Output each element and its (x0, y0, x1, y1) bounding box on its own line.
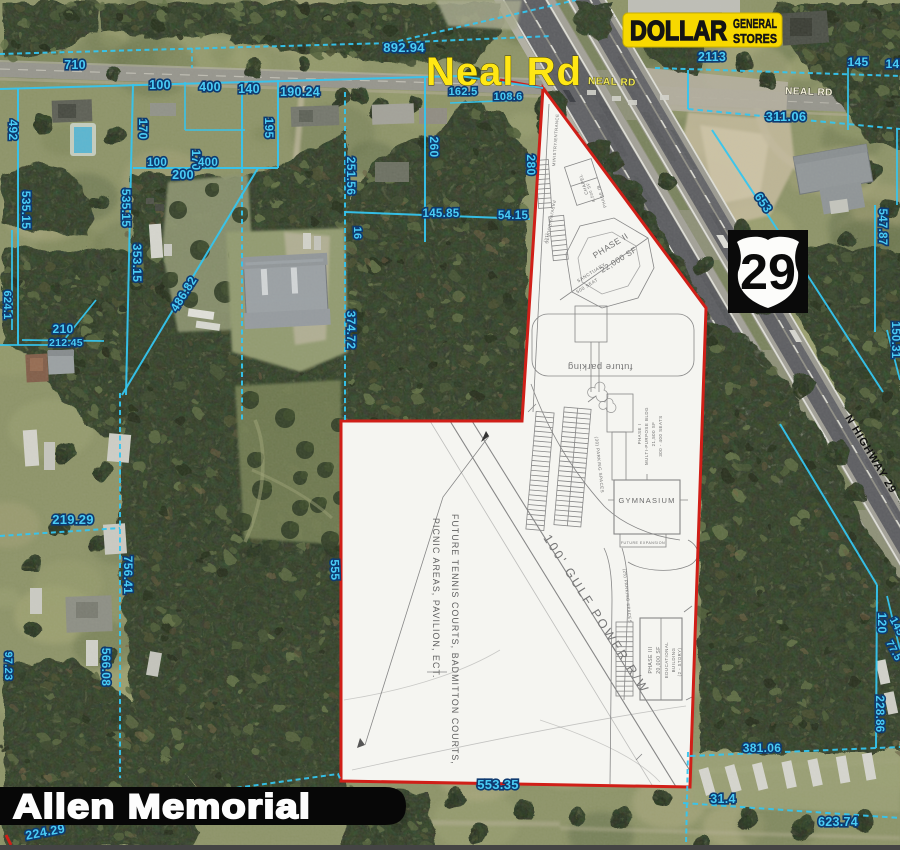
svg-text:140: 140 (238, 82, 260, 96)
svg-text:Allen Memorial: Allen Memorial (13, 788, 311, 826)
svg-text:353.15: 353.15 (130, 244, 144, 283)
svg-text:892.94: 892.94 (383, 40, 425, 55)
svg-text:54.15: 54.15 (498, 210, 529, 222)
svg-text:623.74: 623.74 (818, 815, 858, 829)
svg-text:100: 100 (147, 157, 167, 169)
svg-text:DOLLAR: DOLLAR (630, 15, 727, 46)
svg-text:31.4: 31.4 (710, 792, 736, 806)
svg-text:280: 280 (524, 155, 538, 176)
svg-text:21,500 SF: 21,500 SF (651, 422, 656, 447)
svg-text:145: 145 (848, 55, 869, 69)
svg-text:MULTI-PURPOSE BLDG: MULTI-PURPOSE BLDG (644, 407, 649, 465)
svg-text:381.06: 381.06 (743, 741, 782, 755)
svg-text:195: 195 (262, 118, 276, 139)
svg-text:170: 170 (136, 119, 150, 140)
svg-text:120: 120 (875, 613, 889, 634)
svg-text:20,000 SF: 20,000 SF (656, 646, 662, 674)
svg-text:PICNIC AREAS, PAVILION, ECT.: PICNIC AREAS, PAVILION, ECT. (431, 518, 441, 679)
svg-text:710: 710 (64, 58, 86, 72)
svg-text:97.23: 97.23 (2, 651, 14, 680)
svg-text:100: 100 (149, 78, 171, 92)
svg-text:2113: 2113 (698, 50, 726, 64)
svg-text:400: 400 (198, 157, 218, 169)
svg-text:29: 29 (740, 244, 796, 300)
svg-text:400: 400 (199, 80, 221, 94)
svg-text:311.06: 311.06 (766, 109, 807, 124)
svg-text:future parking: future parking (567, 361, 632, 372)
svg-text:219.29: 219.29 (52, 512, 94, 527)
svg-text:210: 210 (53, 322, 74, 336)
svg-text:535.15: 535.15 (119, 189, 133, 228)
svg-text:NEAL RD: NEAL RD (588, 76, 636, 89)
svg-text:Neal Rd: Neal Rd (426, 50, 582, 94)
svg-text:200: 200 (172, 168, 194, 182)
svg-text:251.56: 251.56 (344, 157, 358, 196)
svg-text:EDUCATIONAL: EDUCATIONAL (664, 642, 669, 678)
svg-text:FUTURE EXPANSION: FUTURE EXPANSION (621, 541, 665, 545)
svg-text:374.72: 374.72 (344, 311, 358, 350)
svg-text:(2 - STORY): (2 - STORY) (677, 648, 682, 677)
svg-text:547.87: 547.87 (876, 209, 888, 246)
svg-text:228.86: 228.86 (873, 696, 885, 733)
svg-text:GENERAL: GENERAL (733, 16, 777, 31)
svg-text:150.31: 150.31 (889, 322, 900, 359)
svg-text:STORES: STORES (733, 31, 777, 46)
svg-text:566.08: 566.08 (99, 648, 113, 687)
svg-text:535.15: 535.15 (19, 191, 33, 230)
svg-text:756.41: 756.41 (121, 556, 135, 595)
svg-text:NEAL RD: NEAL RD (785, 86, 833, 99)
svg-text:PHASE III: PHASE III (648, 646, 654, 673)
svg-text:190.24: 190.24 (280, 85, 320, 99)
svg-text:300 - 400 SEATS: 300 - 400 SEATS (658, 415, 663, 456)
svg-text:492: 492 (6, 120, 20, 141)
svg-text:145.85: 145.85 (423, 208, 460, 220)
svg-text:FUTURE TENNIS COURTS, BADMITTO: FUTURE TENNIS COURTS, BADMITTON COURTS, (450, 514, 460, 765)
svg-text:PHASE I: PHASE I (637, 424, 642, 445)
svg-text:145: 145 (886, 57, 900, 71)
svg-text:GYMNASIUM: GYMNASIUM (618, 496, 675, 505)
svg-text:260: 260 (427, 137, 441, 158)
svg-text:BUILDING: BUILDING (671, 648, 676, 673)
svg-text:16: 16 (351, 227, 363, 240)
svg-text:553.35: 553.35 (477, 777, 519, 792)
svg-text:624.1: 624.1 (1, 290, 13, 319)
svg-text:212.45: 212.45 (49, 337, 83, 349)
svg-text:555: 555 (328, 559, 343, 580)
